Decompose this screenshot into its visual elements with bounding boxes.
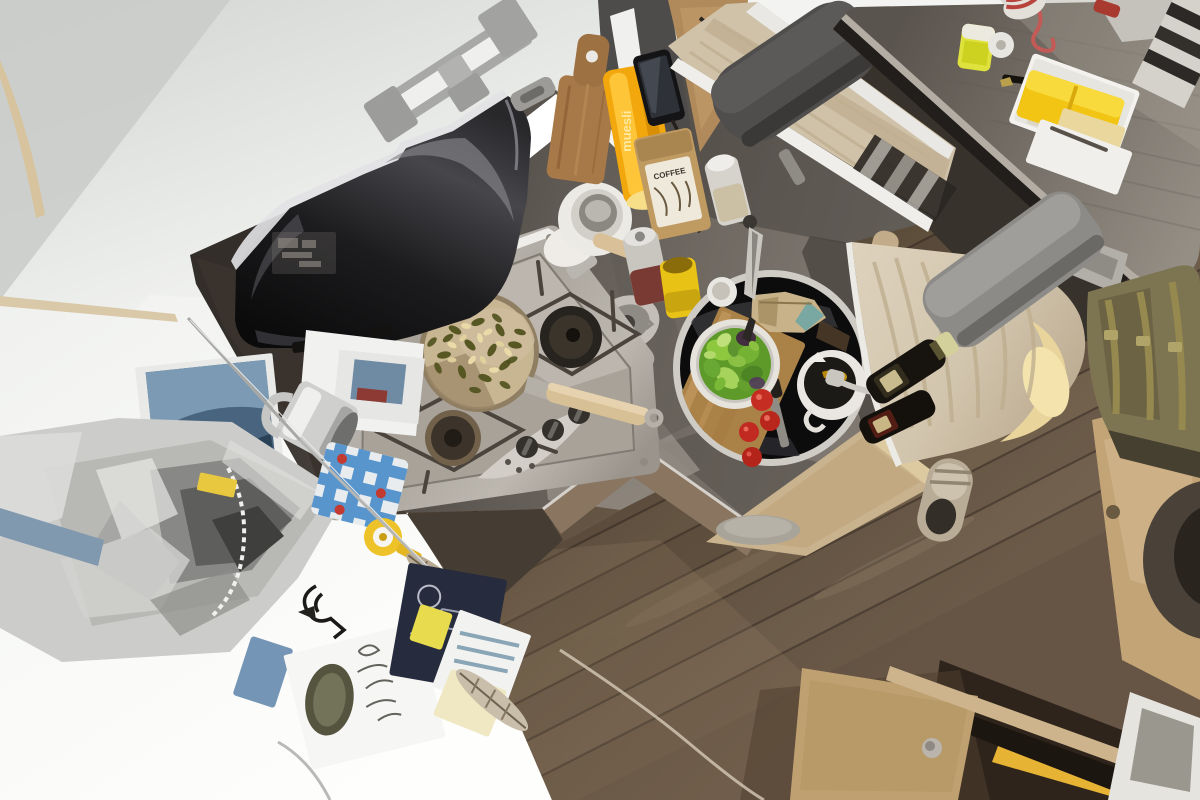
svg-text:muesli: muesli [619,111,634,152]
